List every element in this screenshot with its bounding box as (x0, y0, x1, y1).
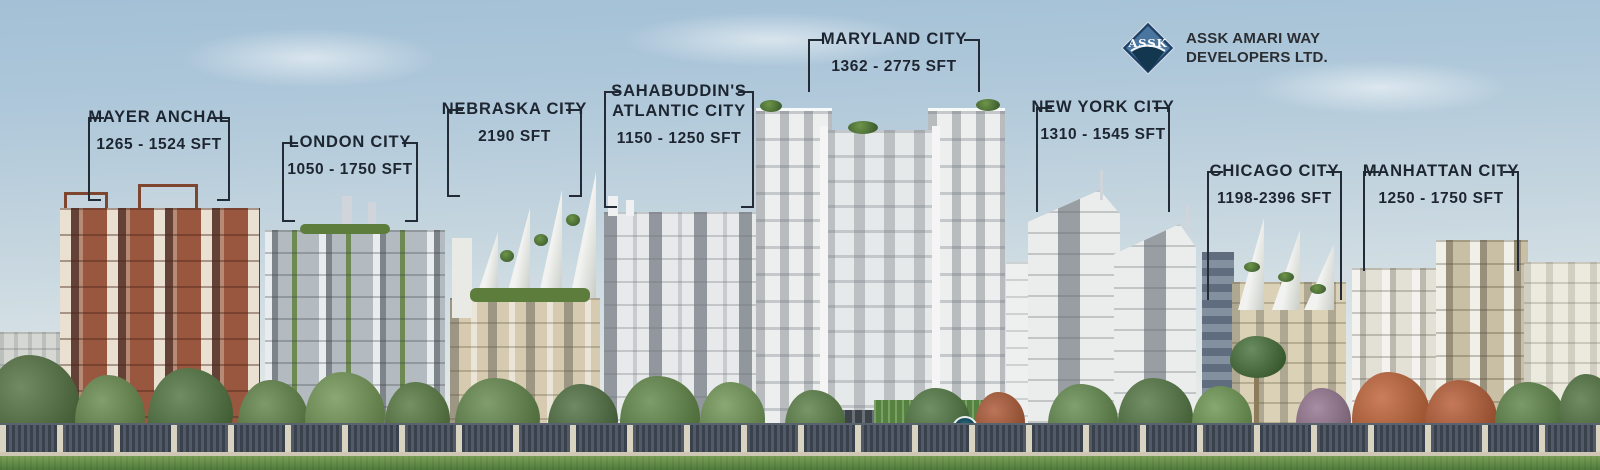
label-title: MARYLAND CITY (821, 29, 967, 49)
developer-logo: ASSK ASSK AMARI WAY DEVELOPERS LTD. (1120, 20, 1328, 76)
label-title: NEW YORK CITY (1031, 97, 1174, 117)
rooftop-plant (848, 121, 878, 134)
palm-tree-top (1230, 336, 1286, 378)
project-label-mayer-anchal: MAYER ANCHAL 1265 - 1524 SFT (88, 117, 230, 201)
project-label-london-city: LONDON CITY 1050 - 1750 SFT (282, 142, 418, 222)
label-title: MANHATTAN CITY (1363, 161, 1519, 181)
grass-strip (0, 456, 1600, 470)
project-label-maryland-city: MARYLAND CITY 1362 - 2775 SFT (808, 39, 980, 92)
rooftop-plant (566, 214, 580, 226)
label-title: SAHABUDDIN'SATLANTIC CITY (611, 81, 746, 121)
label-sft: 1362 - 2775 SFT (821, 57, 967, 77)
label-sft: 1310 - 1545 SFT (1031, 125, 1174, 145)
cloud (180, 28, 440, 88)
label-sft: 1050 - 1750 SFT (287, 160, 412, 180)
label-sft: 2190 SFT (442, 127, 587, 147)
building-nebraska-wing (452, 238, 472, 318)
rooftop-plant (534, 234, 548, 246)
banner-scene: MAYER ANCHAL 1265 - 1524 SFT LONDON CITY… (0, 0, 1600, 470)
logo-name: ASSK AMARI WAY DEVELOPERS LTD. (1186, 29, 1328, 67)
project-label-sahabuddins-atlantic-city: SAHABUDDIN'SATLANTIC CITY 1150 - 1250 SF… (604, 91, 754, 208)
label-sft: 1250 - 1750 SFT (1363, 189, 1519, 209)
logo-name-line2: DEVELOPERS LTD. (1186, 48, 1328, 67)
project-label-manhattan-city: MANHATTAN CITY 1250 - 1750 SFT (1363, 171, 1519, 271)
rooftop-hedge (470, 288, 590, 302)
spire (1186, 205, 1189, 233)
rooftop-plant (500, 250, 514, 262)
label-title: MAYER ANCHAL (88, 107, 229, 127)
project-label-new-york-city: NEW YORK CITY 1310 - 1545 SFT (1036, 107, 1170, 212)
logo-diamond-icon: ASSK (1120, 20, 1176, 76)
project-label-nebraska-city: NEBRASKA CITY 2190 SFT (447, 109, 582, 197)
label-sft: 1198-2396 SFT (1210, 189, 1340, 209)
rooftop-hedge (300, 224, 390, 234)
rooftop-plant (760, 100, 782, 112)
label-sft: 1150 - 1250 SFT (611, 129, 746, 149)
logo-name-line1: ASSK AMARI WAY (1186, 29, 1328, 48)
label-title: LONDON CITY (287, 132, 412, 152)
logo-mark-text: ASSK (1127, 36, 1167, 50)
rooftop-plant (976, 99, 1000, 111)
label-title: CHICAGO CITY (1210, 161, 1340, 181)
project-label-chicago-city: CHICAGO CITY 1198-2396 SFT (1207, 171, 1342, 300)
label-sft: 1265 - 1524 SFT (88, 135, 229, 155)
label-title: NEBRASKA CITY (442, 99, 587, 119)
